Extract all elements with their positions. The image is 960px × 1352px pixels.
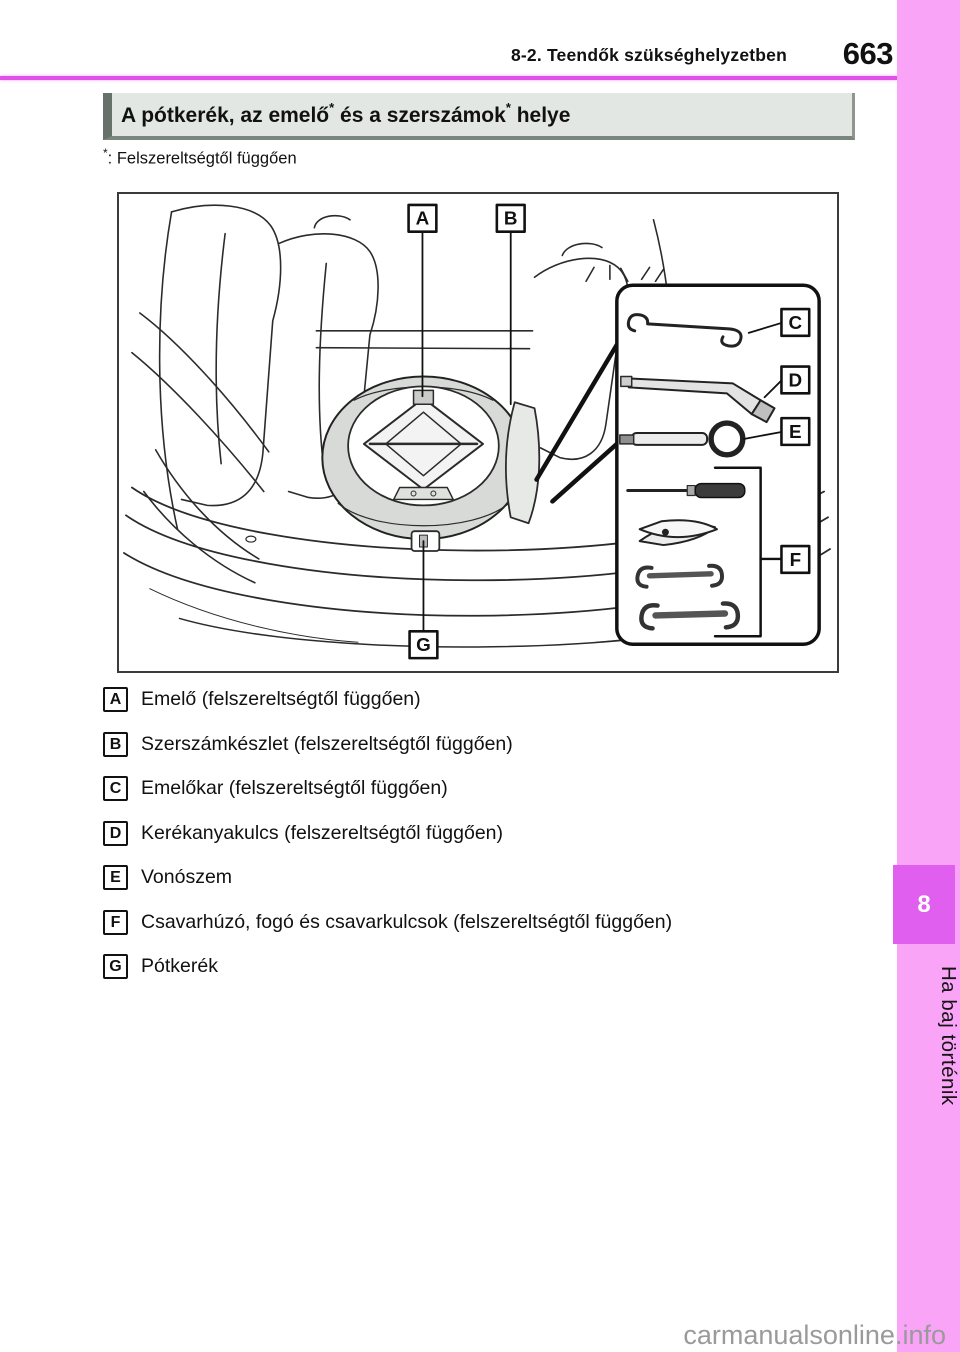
legend-row-a: A Emelő (felszereltségtől függően) bbox=[103, 686, 883, 713]
legend-key-e: E bbox=[103, 865, 128, 890]
diagram-label-a: A bbox=[416, 208, 430, 229]
section-title-bar: A pótkerék, az emelő* és a szerszámok* h… bbox=[103, 93, 855, 140]
legend-key-c: C bbox=[103, 776, 128, 801]
running-header: 8-2. Teendők szükséghelyzetben bbox=[511, 45, 787, 66]
tool-panel bbox=[617, 285, 819, 644]
legend-key-a: A bbox=[103, 687, 128, 712]
legend-row-g: G Pótkerék bbox=[103, 953, 883, 980]
footnote-marker: * bbox=[329, 100, 334, 115]
footnote-marker: * bbox=[506, 100, 511, 115]
legend-text-a: Emelő (felszereltségtől függően) bbox=[141, 686, 421, 713]
legend-row-c: C Emelőkar (felszereltségtől függően) bbox=[103, 775, 883, 802]
legend-row-e: E Vonószem bbox=[103, 864, 883, 891]
header-rule bbox=[0, 76, 897, 80]
diagram-frame: A B C D E F G bbox=[117, 192, 839, 673]
legend-text-e: Vonószem bbox=[141, 864, 232, 891]
legend-row-d: D Kerékanyakulcs (felszereltségtől függő… bbox=[103, 820, 883, 847]
diagram-label-c: C bbox=[789, 312, 803, 333]
legend-key-f: F bbox=[103, 910, 128, 935]
diagram-label-f: F bbox=[790, 549, 802, 570]
legend-list: A Emelő (felszereltségtől függően) B Sze… bbox=[103, 686, 883, 998]
diagram-label-b: B bbox=[504, 208, 518, 229]
legend-text-c: Emelőkar (felszereltségtől függően) bbox=[141, 775, 448, 802]
chapter-tab: 8 bbox=[893, 865, 955, 944]
legend-row-b: B Szerszámkészlet (felszereltségtől függ… bbox=[103, 731, 883, 758]
legend-row-f: F Csavarhúzó, fogó és csavarkulcsok (fel… bbox=[103, 909, 883, 936]
diagram-label-d: D bbox=[789, 369, 803, 390]
legend-text-b: Szerszámkészlet (felszereltségtől függőe… bbox=[141, 731, 513, 758]
chapter-label-vertical: Ha baj történik bbox=[897, 956, 960, 1116]
legend-key-b: B bbox=[103, 732, 128, 757]
legend-key-g: G bbox=[103, 954, 128, 979]
callout-wedge bbox=[537, 345, 617, 502]
legend-text-g: Pótkerék bbox=[141, 953, 218, 980]
footnote: *: Felszereltségtől függően bbox=[103, 146, 297, 169]
tool-bag bbox=[506, 402, 539, 523]
spare-tire bbox=[322, 376, 539, 539]
page-number: 663 bbox=[843, 36, 893, 72]
trunk-diagram: A B C D E F G bbox=[119, 194, 837, 671]
legend-text-f: Csavarhúzó, fogó és csavarkulcsok (felsz… bbox=[141, 909, 672, 936]
diagram-label-g: G bbox=[416, 634, 431, 655]
legend-text-d: Kerékanyakulcs (felszereltségtől függően… bbox=[141, 820, 503, 847]
legend-key-d: D bbox=[103, 821, 128, 846]
section-title: A pótkerék, az emelő* és a szerszámok* h… bbox=[121, 102, 570, 128]
watermark: carmanualsonline.info bbox=[683, 1320, 946, 1351]
chapter-number: 8 bbox=[917, 891, 930, 919]
diagram-label-e: E bbox=[789, 421, 802, 442]
chapter-side-band bbox=[897, 0, 960, 1352]
